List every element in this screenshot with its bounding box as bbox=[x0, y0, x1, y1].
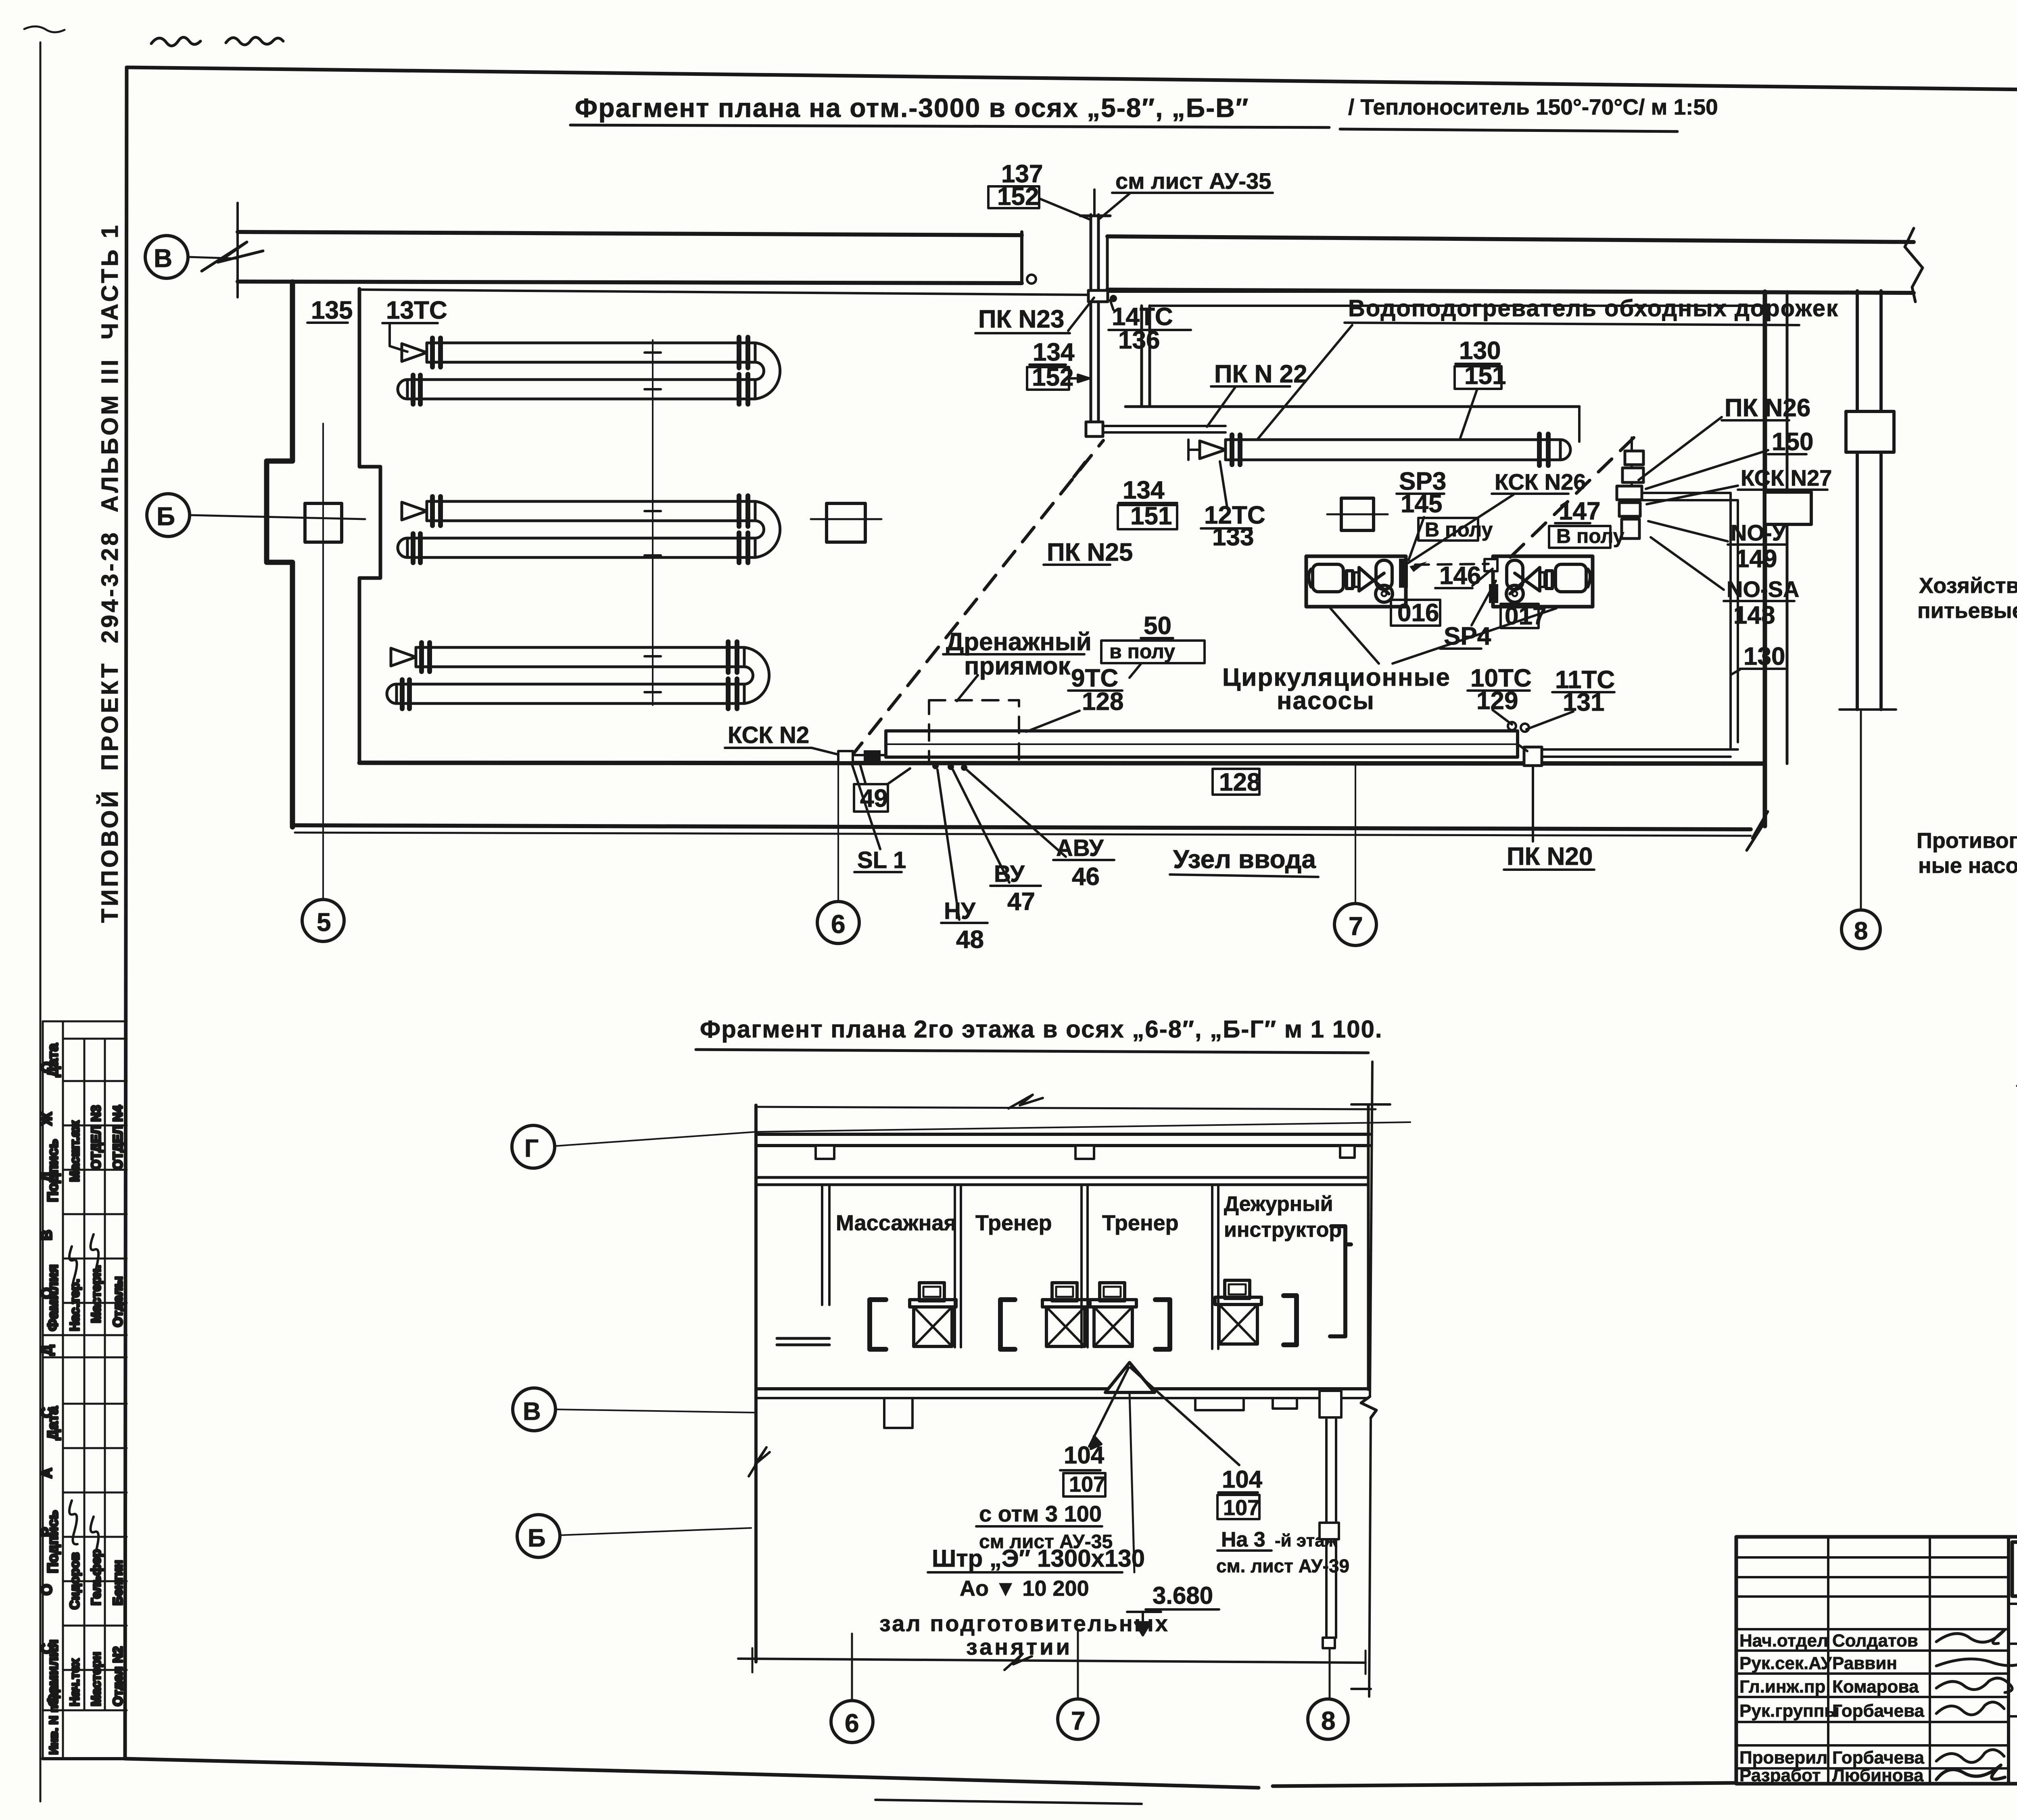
svg-text:В: В bbox=[38, 1230, 55, 1240]
svg-text:150: 150 bbox=[1772, 428, 1813, 456]
svg-text:Д: Д bbox=[38, 1345, 55, 1355]
svg-text:ные насосы: ные насосы bbox=[1918, 854, 2017, 878]
svg-text:Дежурный: Дежурный bbox=[1224, 1192, 1333, 1216]
svg-text:см. лист АУ-39: см. лист АУ-39 bbox=[1216, 1555, 1349, 1576]
svg-text:Узел ввода: Узел ввода bbox=[1173, 845, 1316, 874]
svg-text:Гл.инж.пр: Гл.инж.пр bbox=[1739, 1677, 1825, 1697]
svg-text:ОТДЕЛ N4: ОТДЕЛ N4 bbox=[111, 1105, 125, 1170]
svg-text:Масшт.аж: Масшт.аж bbox=[67, 1121, 82, 1182]
svg-text:Солдатов: Солдатов bbox=[1832, 1631, 1918, 1651]
svg-text:104: 104 bbox=[1222, 1466, 1263, 1493]
svg-text:151: 151 bbox=[1130, 502, 1172, 530]
svg-text:Раввин: Раввин bbox=[1832, 1653, 1897, 1673]
svg-text:В: В bbox=[523, 1398, 541, 1426]
svg-text:147: 147 bbox=[1559, 497, 1600, 525]
svg-text:Г: Г bbox=[524, 1135, 539, 1163]
svg-text:Подпись: Подпись bbox=[44, 1139, 61, 1202]
svg-text:Сидоров: Сидоров bbox=[67, 1553, 82, 1609]
svg-text:Тренер: Тренер bbox=[975, 1211, 1052, 1235]
svg-text:Ж: Ж bbox=[38, 1112, 55, 1126]
svg-text:ТИПОВОЙ ПРОЕКТ 294-3-28 АЛЬ: ТИПОВОЙ ПРОЕКТ 294-3-28 АЛЬБОМ III ЧАСТЬ… bbox=[97, 223, 123, 923]
svg-text:Комарова: Комарова bbox=[1832, 1677, 1919, 1697]
svg-text:питьевые насосы: питьевые насосы bbox=[1917, 599, 2017, 623]
svg-text:Отделы: Отделы bbox=[111, 1276, 125, 1327]
svg-text:ПК N 22: ПК N 22 bbox=[1214, 360, 1307, 388]
svg-text:146: 146 bbox=[1439, 562, 1481, 590]
svg-text:Любинова: Любинова bbox=[1832, 1766, 1924, 1785]
svg-text:Мастерн.: Мастерн. bbox=[89, 1265, 103, 1323]
svg-text:КСК N2: КСК N2 bbox=[728, 722, 809, 748]
svg-text:128: 128 bbox=[1219, 768, 1261, 796]
svg-text:017: 017 bbox=[1505, 602, 1546, 630]
svg-text:На 3: На 3 bbox=[1221, 1528, 1265, 1551]
svg-text:О: О bbox=[38, 1288, 55, 1299]
svg-text:Отдел N2: Отдел N2 bbox=[111, 1647, 125, 1706]
svg-text:Водоподогреватель обходных дор: Водоподогреватель обходных дорожек bbox=[1348, 295, 1839, 321]
svg-text:Горбачева: Горбачева bbox=[1832, 1701, 1925, 1721]
svg-text:Хозяйственно-: Хозяйственно- bbox=[1919, 574, 2017, 598]
svg-text:134: 134 bbox=[1123, 476, 1165, 504]
svg-text:NO-SA: NO-SA bbox=[1727, 576, 1799, 602]
svg-text:инструктор: инструктор bbox=[1224, 1218, 1342, 1242]
svg-text:149: 149 bbox=[1735, 545, 1777, 573]
svg-text:8: 8 bbox=[1854, 917, 1868, 945]
svg-text:6: 6 bbox=[831, 910, 846, 939]
svg-text:Нач.отдел: Нач.отдел bbox=[1739, 1631, 1828, 1651]
svg-text:В полу: В полу bbox=[1556, 525, 1624, 547]
svg-text:Подпись: Подпись bbox=[44, 1510, 61, 1573]
svg-text:насосы: насосы bbox=[1277, 687, 1375, 715]
svg-text:8: 8 bbox=[1321, 1706, 1336, 1735]
svg-text:Мастерн: Мастерн bbox=[89, 1652, 103, 1706]
svg-text:КСК N27: КСК N27 bbox=[1741, 465, 1832, 490]
svg-text:Нач.тех: Нач.тех bbox=[67, 1658, 82, 1706]
svg-text:NO-У: NO-У bbox=[1731, 520, 1787, 545]
svg-text:7: 7 bbox=[1071, 1706, 1086, 1735]
svg-text:приямок: приямок bbox=[964, 652, 1071, 680]
svg-text:SL 1: SL 1 bbox=[857, 847, 906, 873]
svg-text:ПК N25: ПК N25 bbox=[1047, 538, 1133, 566]
svg-text:5: 5 bbox=[317, 908, 331, 937]
svg-text:Массажная: Массажная bbox=[836, 1211, 956, 1235]
svg-text:С: С bbox=[38, 1407, 55, 1418]
svg-text:О: О bbox=[38, 1062, 55, 1073]
svg-text:Проверил: Проверил bbox=[1739, 1748, 1827, 1768]
svg-text:130: 130 bbox=[1459, 337, 1501, 365]
svg-text:50: 50 bbox=[1144, 612, 1171, 640]
svg-text:Д: Д bbox=[38, 1171, 55, 1182]
svg-text:ПК N26: ПК N26 bbox=[1725, 394, 1810, 422]
svg-text:Фрагмент плана 2го этажа в ос: Фрагмент плана 2го этажа в осях „6-8″, „… bbox=[700, 1016, 1383, 1043]
svg-text:ПК N23: ПК N23 bbox=[978, 305, 1064, 333]
svg-text:48: 48 bbox=[956, 926, 984, 954]
svg-text:Разработ: Разработ bbox=[1739, 1766, 1821, 1785]
svg-text:Б: Б bbox=[528, 1524, 546, 1552]
svg-text:148: 148 bbox=[1733, 601, 1775, 629]
svg-text:в полу: в полу bbox=[1109, 640, 1175, 663]
svg-text:135: 135 bbox=[311, 296, 353, 324]
svg-text:В: В bbox=[154, 244, 172, 273]
svg-text:Гельфер: Гельфер bbox=[89, 1549, 103, 1605]
svg-text:6: 6 bbox=[845, 1709, 859, 1738]
svg-text:Дренажный: Дренажный bbox=[946, 628, 1092, 656]
svg-text:130: 130 bbox=[1743, 643, 1785, 670]
svg-text:Бенгин: Бенгин bbox=[111, 1560, 125, 1605]
svg-text:128: 128 bbox=[1082, 688, 1123, 716]
svg-text:А: А bbox=[38, 1468, 55, 1478]
svg-text:Р: Р bbox=[38, 1527, 55, 1537]
svg-text:ОТДЕЛ N3: ОТДЕЛ N3 bbox=[89, 1105, 103, 1170]
svg-text:Нас.тер.: Нас.тер. bbox=[67, 1279, 82, 1332]
svg-text:016: 016 bbox=[1397, 599, 1439, 627]
svg-text:46: 46 bbox=[1072, 863, 1100, 891]
svg-text:/ Теплоноситель 150°-70°С/ м: / Теплоноситель 150°-70°С/ м 1:50 bbox=[1348, 94, 1718, 119]
svg-text:134: 134 bbox=[1033, 338, 1075, 366]
svg-text:107: 107 bbox=[1069, 1472, 1105, 1496]
svg-text:Фрагмент плана на отм.-3000: Фрагмент плана на отм.-3000 в осях „5-8″… bbox=[575, 93, 1249, 123]
svg-text:47: 47 bbox=[1007, 888, 1035, 916]
svg-text:Б: Б bbox=[157, 502, 175, 531]
svg-text:ПК N20: ПК N20 bbox=[1507, 843, 1593, 870]
svg-text:Штр „Э″ 1300х130: Штр „Э″ 1300х130 bbox=[932, 1545, 1145, 1572]
svg-text:Рук.группы: Рук.группы bbox=[1739, 1701, 1840, 1721]
svg-text:Ао ▼ 10 200: Ао ▼ 10 200 bbox=[960, 1576, 1089, 1601]
svg-text:104: 104 bbox=[1064, 1442, 1105, 1469]
svg-text:см лист АУ-35: см лист АУ-35 bbox=[1115, 168, 1271, 194]
svg-text:КСК N26: КСК N26 bbox=[1495, 469, 1586, 495]
svg-text:13ТС: 13ТС bbox=[386, 296, 447, 324]
svg-text:107: 107 bbox=[1223, 1496, 1259, 1520]
svg-text:АВУ: АВУ bbox=[1056, 835, 1104, 861]
svg-text:3.680: 3.680 bbox=[1153, 1582, 1213, 1609]
svg-text:С: С bbox=[38, 1643, 55, 1654]
svg-text:Рук.сек.АУ: Рук.сек.АУ bbox=[1739, 1653, 1832, 1673]
svg-text:Инв. N подл.: Инв. N подл. bbox=[47, 1679, 61, 1755]
svg-text:SP4: SP4 bbox=[1444, 622, 1491, 650]
svg-text:О: О bbox=[38, 1584, 55, 1595]
svg-text:Горбачева: Горбачева bbox=[1832, 1748, 1925, 1768]
svg-text:Тренер: Тренер bbox=[1102, 1211, 1179, 1235]
svg-text:7: 7 bbox=[1349, 912, 1363, 941]
svg-text:с отм 3 100: с отм 3 100 bbox=[979, 1501, 1102, 1526]
svg-text:зал подготовительных: зал подготовительных bbox=[879, 1611, 1169, 1636]
svg-text:Противопожар-: Противопожар- bbox=[1917, 829, 2017, 853]
